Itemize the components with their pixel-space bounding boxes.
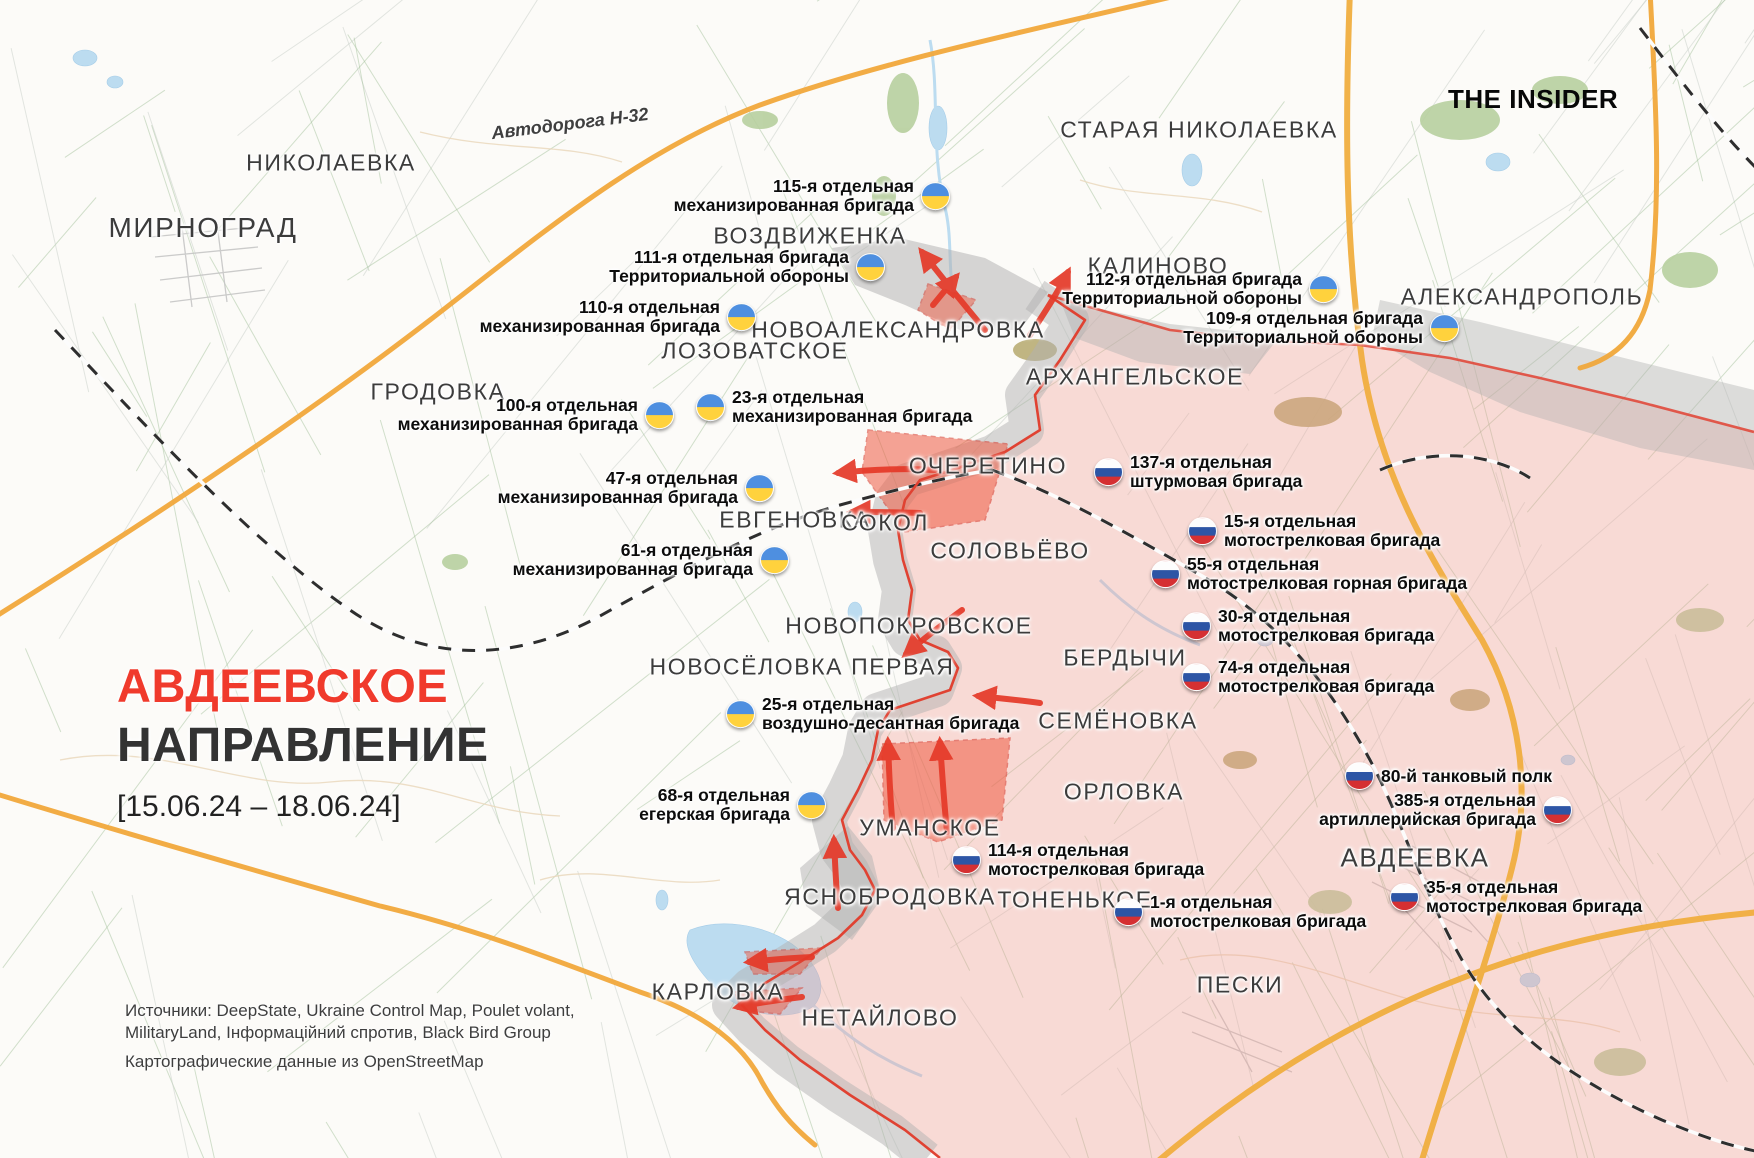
russia-flag-icon: [952, 846, 981, 874]
city-label-6: АЛЕКСАНДРОПОЛЬ: [1401, 284, 1644, 311]
map-title: АВДЕЕВСКОЕ НАПРАВЛЕНИЕ [15.06.24 – 18.06…: [117, 662, 489, 822]
russia-flag-icon: [1188, 517, 1217, 545]
city-label-13: СОКОЛ: [841, 510, 929, 537]
unit-label-text: 385-я отдельнаяартиллерийская бригада: [1319, 791, 1536, 829]
unit-label-text: 35-я отдельнаямотострелковая бригада: [1426, 878, 1642, 916]
unit-label-114: 114-я отдельнаямотострелковая бригада: [952, 841, 1204, 879]
city-label-24: КАРЛОВКА: [652, 979, 785, 1006]
ukraine-flag-icon: [745, 474, 774, 502]
unit-label-text: 61-я отдельнаямеханизированная бригада: [513, 541, 753, 579]
russia-flag-icon: [1094, 458, 1123, 486]
sources-line2: MilitaryLand, Інформаційний спротив, Bla…: [125, 1022, 575, 1044]
city-label-9: АРХАНГЕЛЬСКОЕ: [1026, 364, 1244, 391]
ukraine-flag-icon: [856, 253, 885, 281]
city-label-20: УМАНСКОЕ: [859, 815, 1001, 842]
unit-label-text: 15-я отдельнаямотострелковая бригада: [1224, 512, 1440, 550]
russia-flag-icon: [1345, 762, 1374, 790]
unit-label-15: 15-я отдельнаямотострелковая бригада: [1188, 512, 1440, 550]
unit-label-80: 80-й танковый полк: [1345, 762, 1552, 790]
russia-flag-icon: [1114, 898, 1143, 926]
road-label-h32: Автодорога Н-32: [490, 104, 649, 144]
sources-line3: Картографические данные из OpenStreetMap: [125, 1051, 575, 1073]
city-label-8: ЛОЗОВАТСКОЕ: [661, 338, 848, 365]
unit-label-1: 1-я отдельнаямотострелковая бригада: [1114, 893, 1366, 931]
unit-label-text: 30-я отдельнаямотострелковая бригада: [1218, 607, 1434, 645]
unit-label-text: 55-я отдельнаямотострелковая горная бриг…: [1187, 555, 1467, 593]
city-label-22: ЯСНОБРОДОВКА: [784, 884, 996, 911]
unit-label-text: 114-я отдельнаямотострелковая бригада: [988, 841, 1204, 879]
unit-label-text: 68-я отдельнаяегерская бригада: [639, 786, 790, 824]
unit-label-text: 109-я отдельная бригадаТерриториальной о…: [1183, 309, 1423, 347]
city-label-19: ОРЛОВКА: [1064, 779, 1184, 806]
city-label-16: БЕРДЫЧИ: [1063, 645, 1186, 672]
city-label-3: СТАРАЯ НИКОЛАЕВКА: [1060, 117, 1338, 144]
map-date-range: [15.06.24 – 18.06.24]: [117, 792, 489, 822]
city-label-21: АВДЕЕВКА: [1340, 843, 1489, 874]
sources-note: Источники: DeepState, Ukraine Control Ma…: [125, 1000, 575, 1072]
unit-label-text: 1-я отдельнаямотострелковая бригада: [1150, 893, 1366, 931]
unit-label-text: 110-я отдельнаямеханизированная бригада: [480, 298, 720, 336]
russia-flag-icon: [1151, 560, 1180, 588]
unit-label-61: 61-я отдельнаямеханизированная бригада: [513, 541, 789, 579]
unit-label-100: 100-я отдельнаямеханизированная бригада: [398, 396, 674, 434]
unit-label-35: 35-я отдельнаямотострелковая бригада: [1390, 878, 1642, 916]
russia-flag-icon: [1390, 883, 1419, 911]
unit-label-109: 109-я отдельная бригадаТерриториальной о…: [1183, 309, 1459, 347]
unit-label-text: 112-я отдельная бригадаТерриториальной о…: [1062, 270, 1302, 308]
unit-label-text: 111-я отдельная бригадаТерриториальной о…: [609, 248, 849, 286]
city-label-26: ПЕСКИ: [1197, 972, 1283, 999]
unit-label-110: 110-я отдельнаямеханизированная бригада: [480, 298, 756, 336]
unit-label-23: 23-я отдельнаямеханизированная бригада: [696, 388, 972, 426]
unit-label-111: 111-я отдельная бригадаТерриториальной о…: [609, 248, 885, 286]
map-title-line1: АВДЕЕВСКОЕ: [117, 662, 489, 709]
ukraine-flag-icon: [645, 401, 674, 429]
ukraine-flag-icon: [727, 303, 756, 331]
ukraine-flag-icon: [726, 700, 755, 728]
city-label-11: ОЧЕРЕТИНО: [909, 453, 1067, 480]
russia-flag-icon: [1182, 612, 1211, 640]
unit-label-55: 55-я отдельнаямотострелковая горная бриг…: [1151, 555, 1467, 593]
ukraine-flag-icon: [797, 791, 826, 819]
city-label-2: НИКОЛАЕВКА: [246, 150, 416, 177]
unit-label-text: 137-я отдельнаяштурмовая бригада: [1130, 453, 1302, 491]
unit-label-385: 385-я отдельнаяартиллерийская бригада: [1319, 791, 1572, 829]
unit-label-text: 23-я отдельнаямеханизированная бригада: [732, 388, 972, 426]
map-canvas: THE INSIDER Автодорога Н-32 АВДЕЕВСКОЕ Н…: [0, 0, 1754, 1158]
ukraine-flag-icon: [1430, 314, 1459, 342]
unit-label-115: 115-я отдельнаямеханизированная бригада: [674, 177, 950, 215]
city-label-14: СОЛОВЬЁВО: [930, 538, 1089, 565]
unit-label-text: 74-я отдельнаямотострелковая бригада: [1218, 658, 1434, 696]
russia-flag-icon: [1543, 796, 1572, 824]
ukraine-flag-icon: [1309, 275, 1338, 303]
unit-label-137: 137-я отдельнаяштурмовая бригада: [1094, 453, 1302, 491]
ukraine-flag-icon: [760, 546, 789, 574]
unit-label-30: 30-я отдельнаямотострелковая бригада: [1182, 607, 1434, 645]
city-label-1: МИРНОГРАД: [108, 212, 297, 244]
city-label-15: НОВОПОКРОВСКОЕ: [785, 613, 1032, 640]
city-label-17: НОВОСЁЛОВКА ПЕРВАЯ: [650, 654, 955, 681]
unit-label-74: 74-я отдельнаямотострелковая бригада: [1182, 658, 1434, 696]
ukraine-flag-icon: [696, 393, 725, 421]
unit-label-text: 100-я отдельнаямеханизированная бригада: [398, 396, 638, 434]
unit-label-text: 115-я отдельнаямеханизированная бригада: [674, 177, 914, 215]
unit-label-text: 80-й танковый полк: [1381, 767, 1552, 786]
city-label-18: СЕМЁНОВКА: [1038, 708, 1197, 735]
city-label-25: НЕТАЙЛОВО: [802, 1005, 959, 1032]
unit-label-text: 47-я отдельнаямеханизированная бригада: [498, 469, 738, 507]
unit-label-47: 47-я отдельнаямеханизированная бригада: [498, 469, 774, 507]
unit-label-68: 68-я отдельнаяегерская бригада: [639, 786, 826, 824]
russia-flag-icon: [1182, 663, 1211, 691]
unit-label-text: 25-я отдельнаявоздушно-десантная бригада: [762, 695, 1019, 733]
label-layer: THE INSIDER Автодорога Н-32 АВДЕЕВСКОЕ Н…: [0, 0, 1754, 1158]
sources-line1: Источники: DeepState, Ukraine Control Ma…: [125, 1000, 575, 1022]
the-insider-logo: THE INSIDER: [1448, 84, 1618, 115]
unit-label-25: 25-я отдельнаявоздушно-десантная бригада: [726, 695, 1019, 733]
map-title-line2: НАПРАВЛЕНИЕ: [117, 722, 489, 770]
ukraine-flag-icon: [921, 182, 950, 210]
unit-label-112: 112-я отдельная бригадаТерриториальной о…: [1062, 270, 1338, 308]
city-label-4: ВОЗДВИЖЕНКА: [713, 223, 906, 250]
